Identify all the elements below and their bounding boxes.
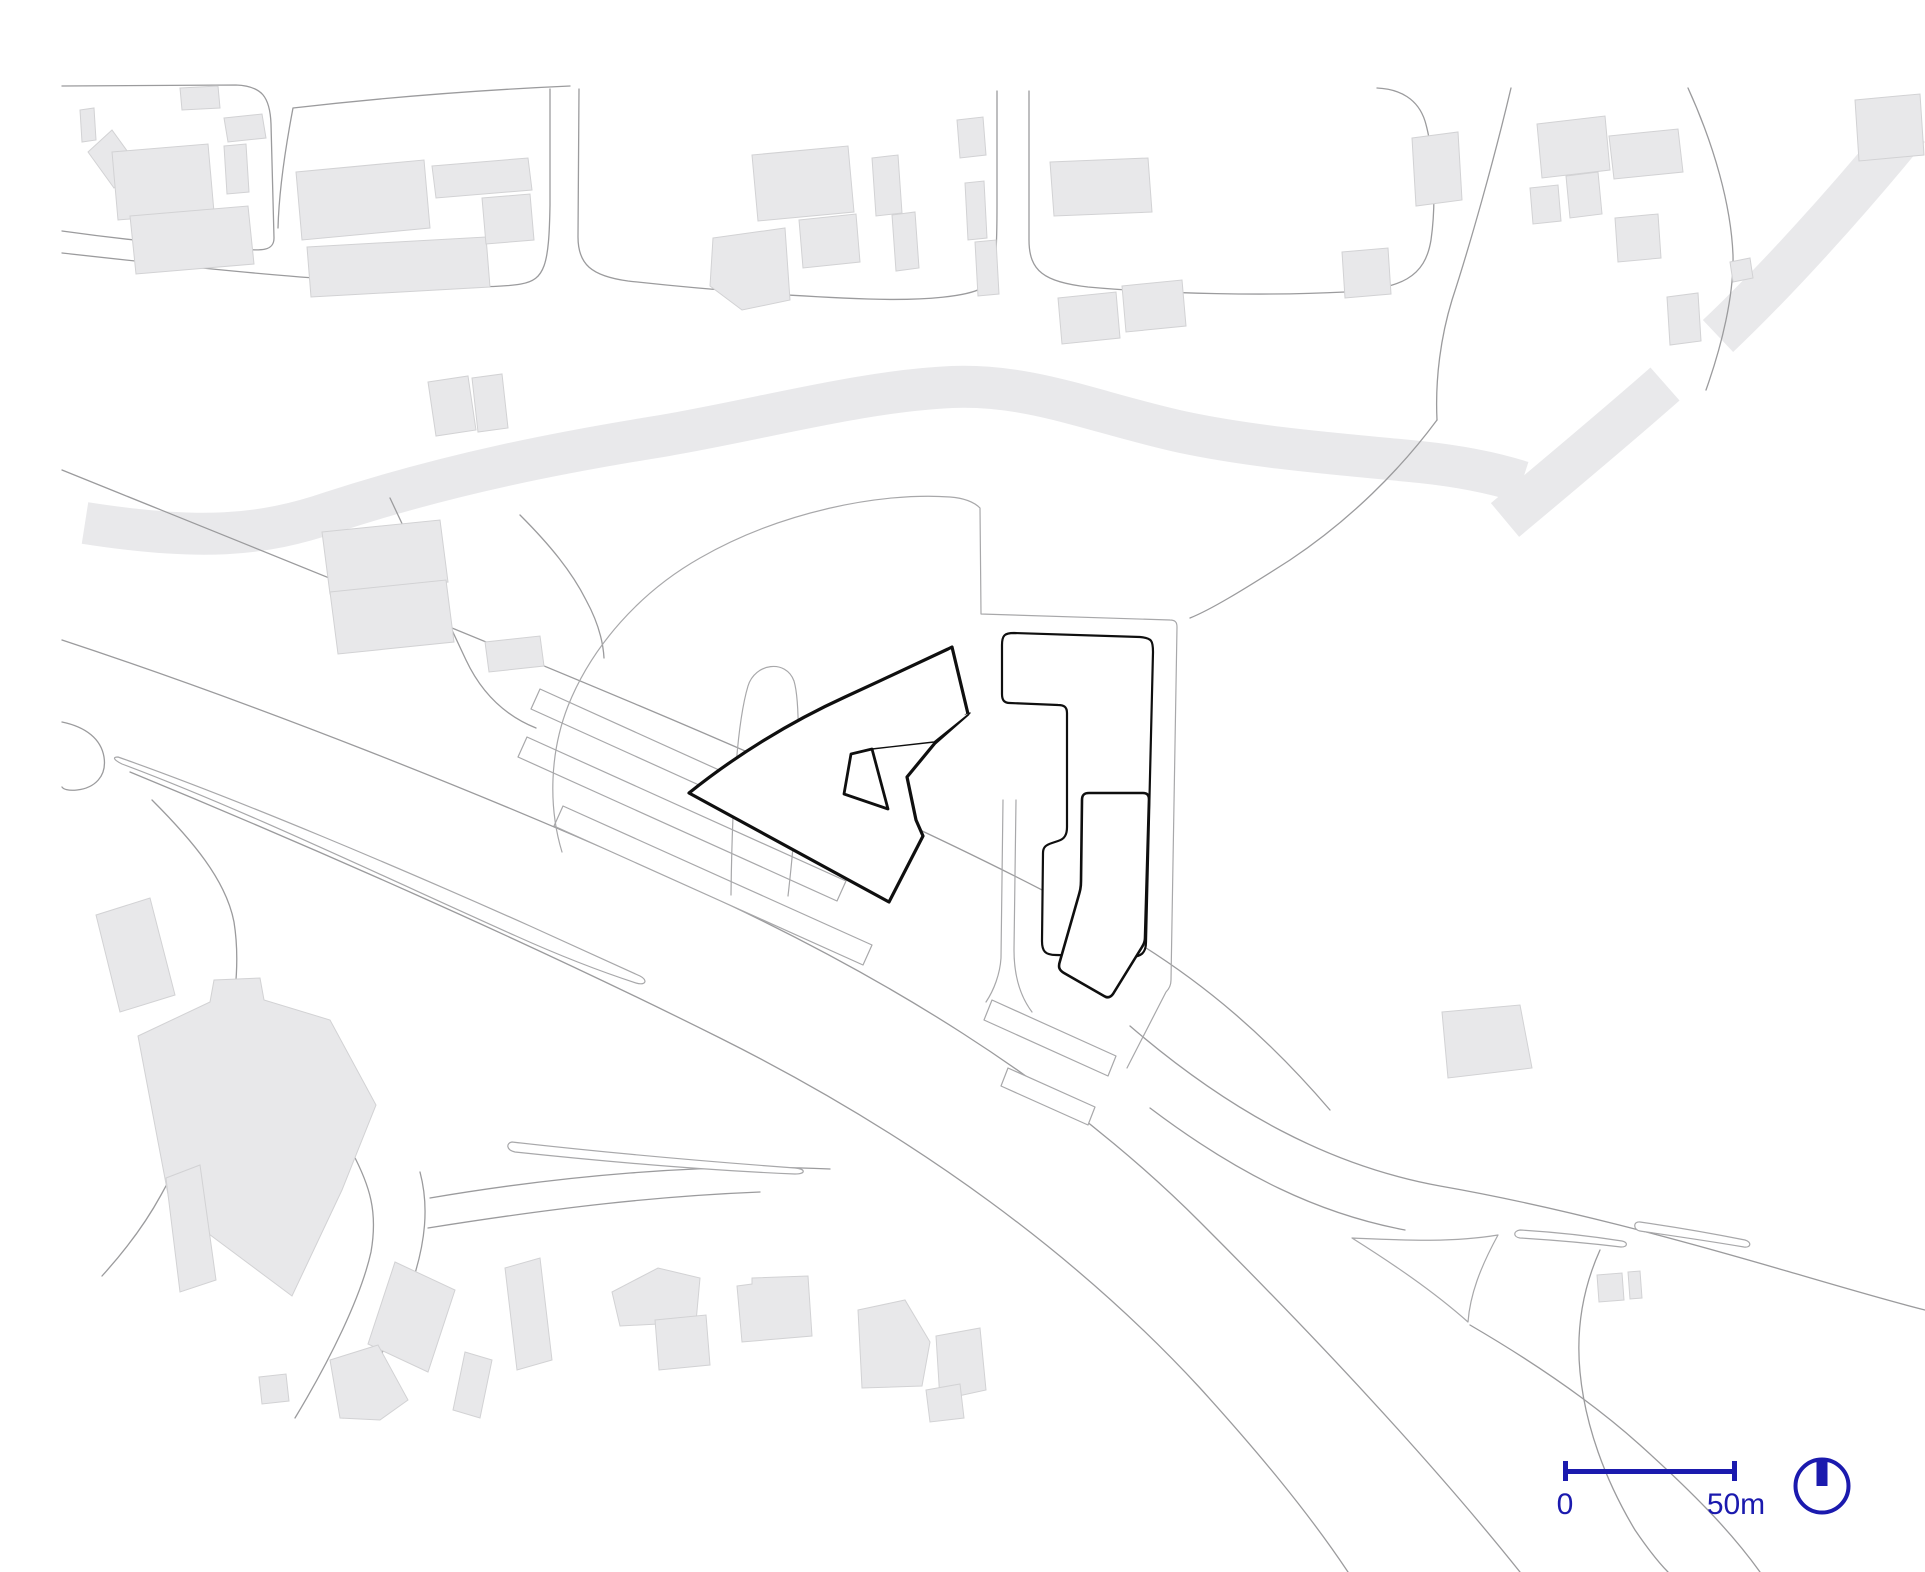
- scale-bar-line: [1563, 1469, 1737, 1474]
- context-building: [752, 146, 854, 221]
- context-building: [482, 194, 534, 244]
- context-building: [307, 237, 490, 297]
- scale-bar-tick-right: [1732, 1461, 1737, 1481]
- context-building: [892, 212, 919, 271]
- context-building: [130, 206, 254, 274]
- context-building: [872, 155, 902, 216]
- context-building: [1730, 258, 1753, 282]
- road-network: [62, 85, 1925, 1572]
- context-building: [1566, 172, 1602, 218]
- context-building: [1050, 158, 1152, 216]
- site-main-building: [689, 647, 968, 902]
- north-arrow: [1796, 1460, 1849, 1513]
- context-building: [224, 114, 266, 142]
- context-building: [1412, 132, 1462, 206]
- parcel-island: [1515, 1230, 1627, 1247]
- parcel-islands: [115, 689, 1750, 1322]
- context-building: [655, 1315, 710, 1370]
- context-building: [428, 376, 476, 436]
- context-building: [1342, 248, 1391, 298]
- site-plan-drawing: 0 50m: [0, 0, 1925, 1572]
- context-building: [472, 374, 508, 432]
- parcel-island: [508, 1142, 803, 1174]
- context-building: [485, 636, 544, 672]
- scale-bar-tick-left: [1563, 1461, 1568, 1481]
- context-building: [926, 1384, 964, 1422]
- context-building: [138, 978, 376, 1296]
- context-building: [957, 117, 986, 158]
- scale-bar-label-start: 0: [1557, 1488, 1574, 1521]
- context-building: [858, 1300, 930, 1388]
- parcel-island: [1352, 1235, 1498, 1322]
- context-building: [799, 214, 860, 268]
- road-line: [1470, 1325, 1760, 1572]
- context-building: [1122, 280, 1186, 332]
- parcel-island: [984, 1000, 1116, 1076]
- context-building: [1667, 293, 1701, 345]
- context-building: [1442, 1005, 1532, 1078]
- context-building: [1530, 185, 1561, 224]
- context-building: [259, 1374, 289, 1404]
- context-building: [710, 228, 790, 310]
- parcel-island: [1001, 1068, 1095, 1125]
- context-buildings: [80, 86, 1924, 1422]
- greenway-main-band: [85, 387, 1522, 534]
- context-building: [737, 1276, 812, 1342]
- road-line: [62, 722, 104, 790]
- road-line: [428, 1192, 760, 1228]
- context-building: [80, 108, 96, 142]
- context-building: [505, 1258, 552, 1370]
- context-building: [1615, 214, 1661, 262]
- scale-bar-label-end: 50m: [1707, 1488, 1765, 1521]
- context-building: [1855, 94, 1924, 161]
- context-building: [975, 240, 999, 296]
- context-building: [965, 181, 987, 240]
- parcel-line: [1014, 800, 1032, 1012]
- parcel-island: [115, 757, 645, 984]
- context-building: [330, 580, 454, 654]
- parcel-line: [986, 800, 1003, 1002]
- context-building: [224, 144, 249, 194]
- context-building: [453, 1352, 492, 1418]
- context-building: [1537, 116, 1610, 178]
- context-building: [432, 158, 532, 198]
- context-building: [1058, 292, 1120, 344]
- parcel-island: [1635, 1222, 1750, 1247]
- scale-bar: 0 50m: [1557, 1461, 1766, 1521]
- context-building: [1628, 1271, 1642, 1299]
- context-building: [296, 160, 430, 240]
- context-building: [1597, 1273, 1624, 1302]
- road-line: [1150, 1108, 1405, 1230]
- site-buildings: [689, 633, 1153, 997]
- context-building: [180, 86, 220, 110]
- north-arrow-needle: [1817, 1460, 1828, 1486]
- context-building: [1609, 129, 1683, 179]
- context-building: [96, 898, 175, 1012]
- greenway-diagonal-lower: [1505, 384, 1665, 520]
- site-plan-page: 0 50m: [0, 0, 1925, 1572]
- context-building: [112, 144, 214, 220]
